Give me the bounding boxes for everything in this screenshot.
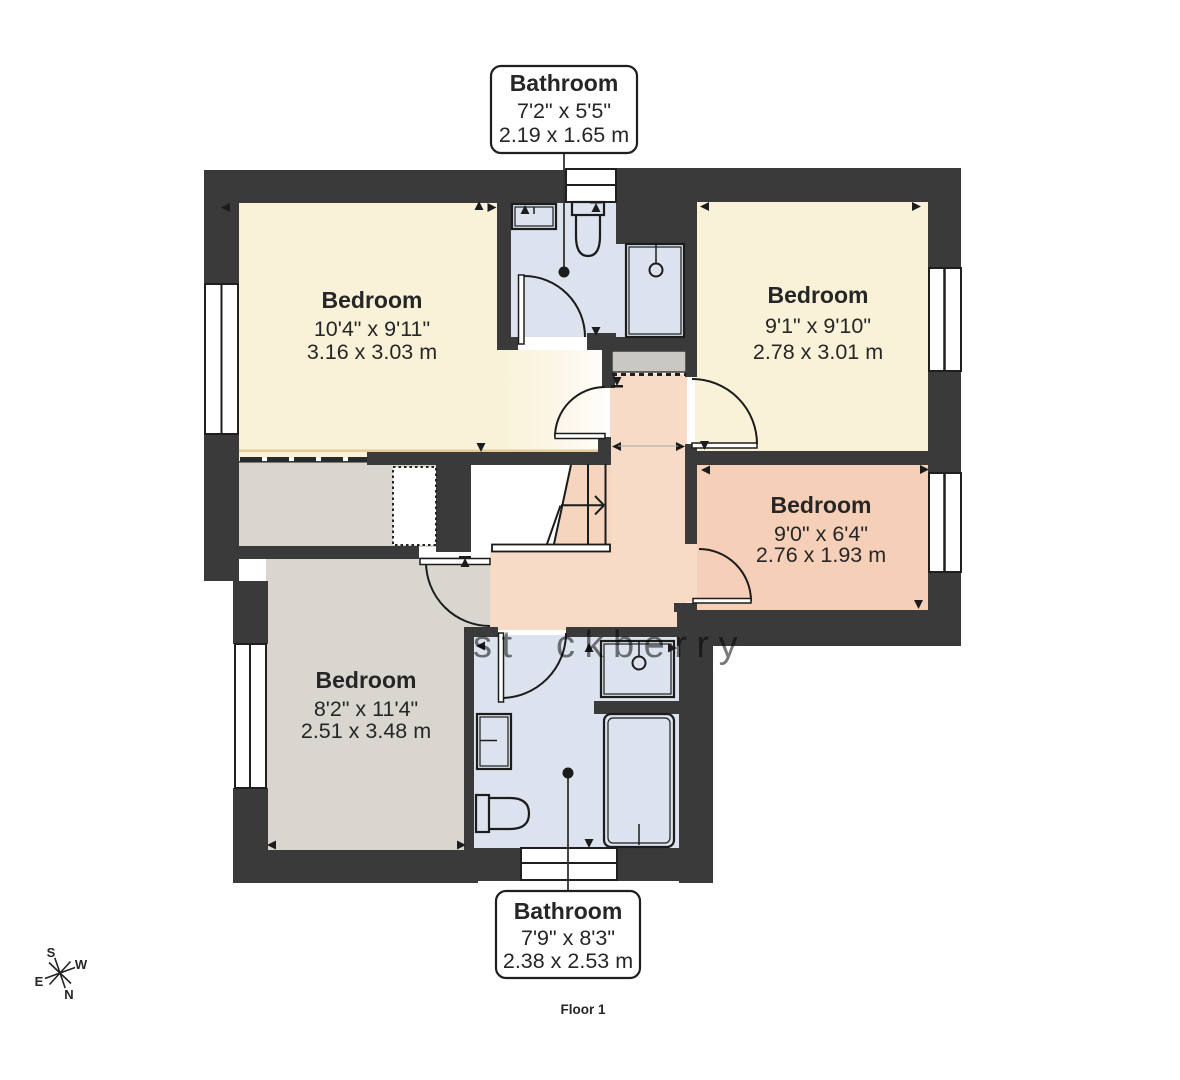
- svg-text:2.19 x 1.65 m: 2.19 x 1.65 m: [499, 123, 629, 147]
- svg-text:Bathroom: Bathroom: [514, 898, 623, 924]
- svg-text:2.38 x 2.53 m: 2.38 x 2.53 m: [503, 949, 633, 973]
- svg-text:Bedroom: Bedroom: [316, 667, 417, 693]
- svg-text:Bathroom: Bathroom: [510, 70, 619, 96]
- svg-text:ckberry: ckberry: [556, 624, 747, 666]
- svg-text:9'1" x 9'10": 9'1" x 9'10": [765, 314, 871, 338]
- svg-text:W: W: [75, 957, 88, 972]
- svg-text:7'9" x 8'3": 7'9" x 8'3": [521, 926, 615, 950]
- svg-text:E: E: [35, 974, 44, 989]
- svg-text:Bedroom: Bedroom: [768, 282, 869, 308]
- svg-text:8'2" x 11'4": 8'2" x 11'4": [314, 697, 418, 721]
- svg-text:2.76 x 1.93 m: 2.76 x 1.93 m: [756, 543, 886, 567]
- svg-text:10'4" x 9'11": 10'4" x 9'11": [314, 317, 430, 341]
- svg-text:2.51 x 3.48 m: 2.51 x 3.48 m: [301, 719, 431, 743]
- svg-text:Bedroom: Bedroom: [322, 287, 423, 313]
- svg-text:N: N: [64, 987, 73, 1002]
- svg-text:2.78 x 3.01 m: 2.78 x 3.01 m: [753, 340, 883, 364]
- svg-text:7'2" x 5'5": 7'2" x 5'5": [517, 99, 611, 123]
- svg-text:Floor 1: Floor 1: [560, 1002, 605, 1017]
- svg-text:3.16 x 3.03 m: 3.16 x 3.03 m: [307, 340, 437, 364]
- svg-text:Bedroom: Bedroom: [771, 492, 872, 518]
- svg-text:S: S: [47, 945, 56, 960]
- svg-text:st: st: [473, 624, 522, 666]
